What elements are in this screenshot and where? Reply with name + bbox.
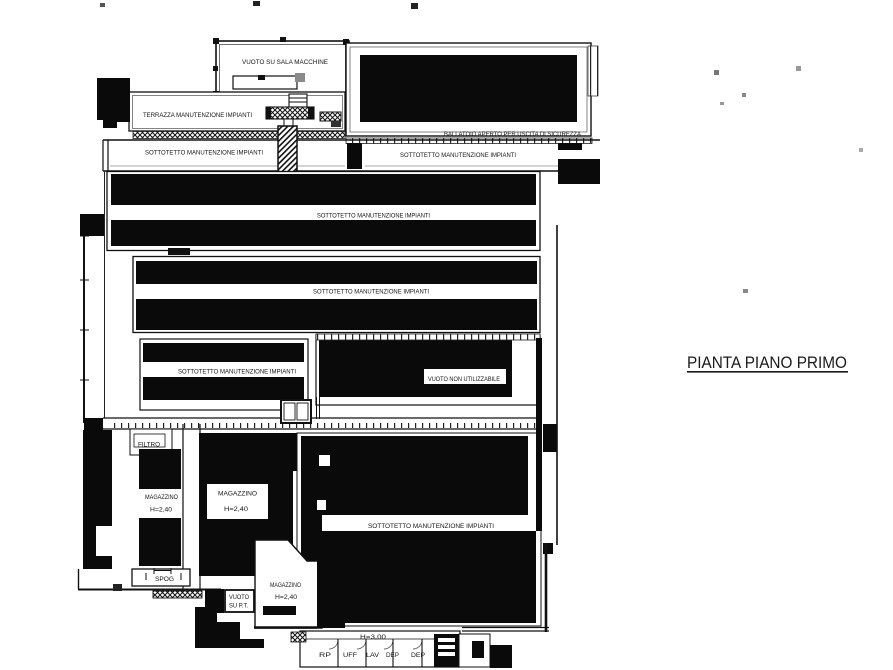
svg-text:PIANTA PIANO PRIMO: PIANTA PIANO PRIMO — [687, 353, 847, 372]
svg-text:SOTTOTETTO MANUTENZIONE IMPI: SOTTOTETTO MANUTENZIONE IMPIANTI — [400, 152, 516, 159]
svg-text:BALLATOIO APERTO PER USCITA DI: BALLATOIO APERTO PER USCITA DI SICUREZZA — [444, 131, 582, 138]
svg-text:SOTTOTETTO MANUTENZIONE IMPIAN: SOTTOTETTO MANUTENZIONE IMPIANTI — [145, 150, 263, 157]
svg-text:VUOTO: VUOTO — [229, 594, 249, 601]
svg-text:H=3,00: H=3,00 — [360, 634, 387, 641]
svg-text:MAGAZZINO: MAGAZZINO — [218, 491, 257, 498]
svg-text:MAGAZZINO: MAGAZZINO — [270, 582, 301, 589]
svg-text:SOTTOTETTO MANUTENZIONE IMPI: SOTTOTETTO MANUTENZIONE IMPIANTI — [317, 213, 430, 220]
svg-text:SU P.T.: SU P.T. — [229, 603, 248, 610]
svg-text:MAGAZZINO: MAGAZZINO — [145, 494, 178, 501]
svg-text:H=2,40: H=2,40 — [224, 506, 249, 513]
svg-text:VUOTO NON UTILIZZABILE: VUOTO NON UTILIZZABILE — [428, 376, 500, 383]
svg-text:LAV: LAV — [366, 652, 380, 659]
svg-text:SOTTOTETTO MANUTENZIONE IMPI: SOTTOTETTO MANUTENZIONE IMPIANTI — [178, 369, 296, 376]
svg-text:SOTTOTETTO MANUTENZIONE IMPI: SOTTOTETTO MANUTENZIONE IMPIANTI — [368, 523, 494, 530]
svg-text:DEP: DEP — [386, 652, 399, 659]
svg-text:UFF: UFF — [343, 652, 357, 659]
svg-text:H=2,40: H=2,40 — [275, 594, 298, 601]
svg-text:H=2,40: H=2,40 — [150, 507, 173, 514]
svg-text:SPOG: SPOG — [155, 576, 174, 583]
svg-text:SOTTOTETTO MANUTENZIONE IMPI: SOTTOTETTO MANUTENZIONE IMPIANTI — [313, 289, 429, 296]
svg-text:VUOTO SU SALA MACCHINE: VUOTO SU SALA MACCHINE — [242, 59, 329, 66]
svg-text:TERRAZZA MANUTENZIONE IMPIANT: TERRAZZA MANUTENZIONE IMPIANTI — [143, 112, 252, 119]
svg-text:RP: RP — [319, 652, 331, 659]
svg-text:DEP: DEP — [411, 652, 425, 659]
svg-text:FILTRO: FILTRO — [138, 442, 160, 449]
